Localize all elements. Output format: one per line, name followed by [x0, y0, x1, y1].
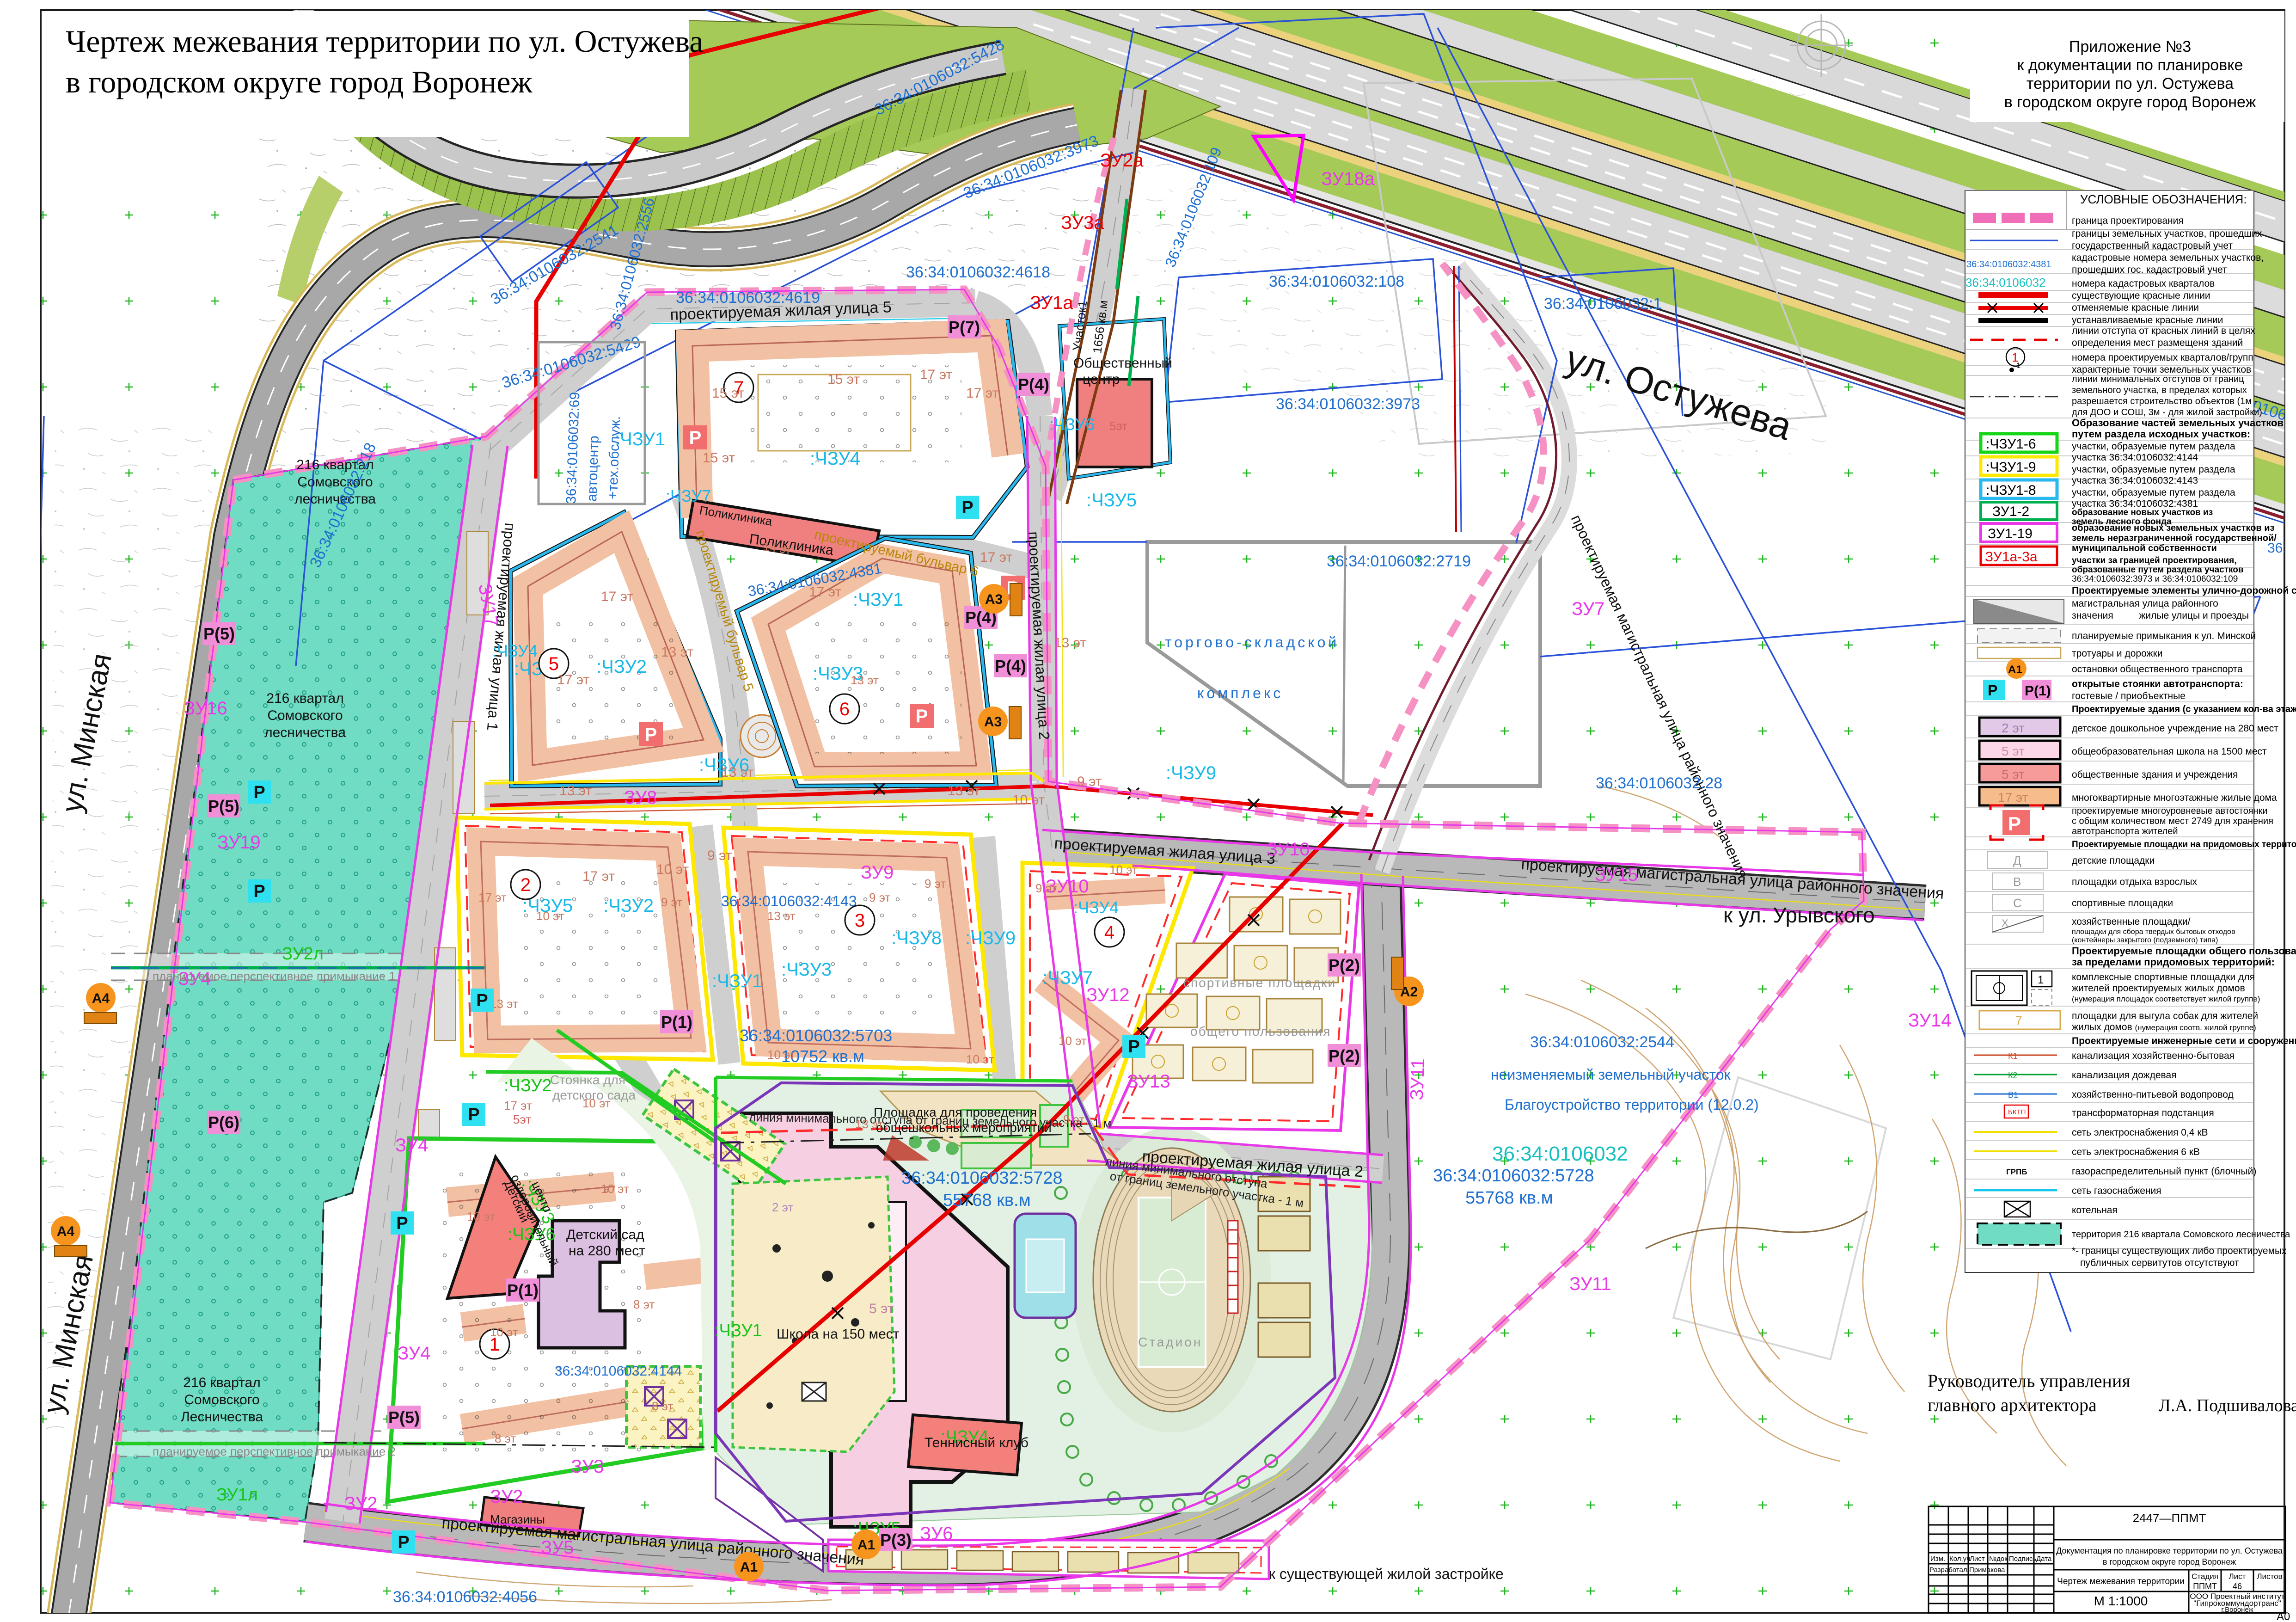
svg-text:9 эт: 9 эт: [707, 848, 732, 863]
svg-text:ЗУ1а-3а: ЗУ1а-3а: [1985, 549, 2038, 565]
svg-text:С: С: [2013, 896, 2022, 910]
svg-text:хозяйственно-питьевой водопров: хозяйственно-питьевой водопровод: [2072, 1089, 2234, 1100]
svg-text:жителей проектируемых жилых до: жителей проектируемых жилых домов: [2072, 983, 2245, 994]
svg-text:1: 1: [2016, 361, 2020, 370]
svg-text:1: 1: [2038, 974, 2044, 986]
svg-text:36:34:0106032: 36:34:0106032: [1492, 1143, 1628, 1165]
svg-text:трансформаторная подстанция: трансформаторная подстанция: [2072, 1108, 2214, 1118]
svg-text::ЧЗУ4: :ЧЗУ4: [810, 449, 860, 469]
svg-text:10 эт: 10 эт: [767, 1048, 796, 1062]
svg-text:ГРПБ: ГРПБ: [2006, 1167, 2027, 1176]
svg-text:жилых домов (нумерация соотв.: жилых домов (нумерация соотв. жилой груп…: [2072, 1022, 2256, 1032]
svg-text:земельного участка, в пределах: земельного участка, в пределах которых: [2072, 385, 2247, 395]
svg-text:детское дошкольное учреждение: детское дошкольное учреждение на 280 мес…: [2072, 723, 2278, 734]
svg-text:Р: Р: [2008, 813, 2021, 835]
svg-text::ЧЗУ7: :ЧЗУ7: [1042, 968, 1093, 988]
svg-text:отменяемые красные линии: отменяемые красные линии: [2072, 302, 2199, 313]
svg-text:36:34:0106032:4619: 36:34:0106032:4619: [676, 289, 820, 307]
svg-text:ППМТ: ППМТ: [2193, 1582, 2217, 1591]
svg-text:А4: А4: [92, 991, 110, 1006]
svg-text:ЗУ4: ЗУ4: [395, 1135, 428, 1155]
svg-text:Руководитель управления: Руководитель управления: [1928, 1370, 2131, 1391]
svg-text:участка 36:34:0106032:4144: участка 36:34:0106032:4144: [2072, 452, 2198, 463]
svg-text:территории по ул. Остужева: территории по ул. Остужева: [2027, 75, 2234, 92]
svg-text::ЧЗУ1-8: :ЧЗУ1-8: [1986, 483, 2036, 498]
svg-text:Р(7): Р(7): [949, 318, 980, 337]
svg-text:13 эт: 13 эт: [661, 645, 693, 660]
svg-text:Стоянка для: Стоянка для: [550, 1073, 625, 1087]
svg-text:котельная: котельная: [2072, 1205, 2118, 1216]
svg-text:ЗУ2: ЗУ2: [344, 1493, 377, 1514]
svg-text:10 эт: 10 эт: [1059, 1034, 1087, 1048]
svg-text:образование новых участков из: образование новых участков из: [2072, 508, 2213, 517]
svg-text:Р(1): Р(1): [507, 1281, 539, 1300]
svg-text:10 эт: 10 эт: [582, 1096, 611, 1110]
svg-text:Д: Д: [2013, 854, 2021, 867]
svg-text:Р: Р: [645, 725, 657, 745]
svg-text:площадки для выгула собак для: площадки для выгула собак для жителей: [2072, 1011, 2258, 1021]
svg-text:многоквартирные многоэтажные ж: многоквартирные многоэтажные жилые дома: [2072, 793, 2277, 803]
svg-text:17 эт: 17 эт: [557, 672, 589, 688]
svg-text:ЗУ2а: ЗУ2а: [1100, 150, 1144, 171]
svg-text:граница проектирования: граница проектирования: [2072, 215, 2184, 226]
svg-text:К2: К2: [2008, 1071, 2018, 1080]
svg-text:Р: Р: [1988, 682, 1997, 699]
svg-text::ЧЗУ5: :ЧЗУ5: [1086, 490, 1137, 510]
svg-text:Образование частей земельных у: Образование частей земельных участков: [2072, 417, 2284, 429]
svg-text:А1: А1: [857, 1537, 875, 1553]
svg-text:4: 4: [1104, 922, 1114, 943]
svg-text:Лист: Лист: [1970, 1555, 1985, 1563]
svg-text:36:34:0106032:3973: 36:34:0106032:3973: [1276, 395, 1420, 413]
svg-text:6: 6: [839, 699, 850, 719]
svg-text:Р(5): Р(5): [208, 797, 239, 816]
svg-text:ЗУ15: ЗУ15: [1595, 865, 1638, 885]
svg-text:55768 кв.м: 55768 кв.м: [943, 1191, 1031, 1210]
svg-text:13 эт: 13 эт: [1054, 635, 1086, 651]
svg-text:17 эт: 17 эт: [582, 869, 615, 884]
svg-text:Х: Х: [2002, 917, 2008, 929]
svg-text:УСЛОВНЫЕ ОБОЗНАЧЕНИЯ:: УСЛОВНЫЕ ОБОЗНАЧЕНИЯ:: [2080, 192, 2247, 206]
svg-text:спортивные площадки: спортивные площадки: [2072, 898, 2173, 909]
svg-text:БКТП: БКТП: [2008, 1108, 2026, 1116]
svg-text:5 эт: 5 эт: [869, 1301, 894, 1316]
svg-text:Проектируемые площадки общего: Проектируемые площадки общего пользовани…: [2072, 945, 2296, 957]
svg-text:сеть газоснабжения: сеть газоснабжения: [2072, 1186, 2161, 1196]
svg-text:ЗУ10: ЗУ10: [1267, 839, 1310, 860]
svg-text:участка 36:34:0106032:4143: участка 36:34:0106032:4143: [2072, 475, 2198, 486]
svg-text:№док: №док: [1989, 1555, 2008, 1563]
svg-text:номера проектируемых кварталов: номера проектируемых кварталов/групп: [2072, 352, 2253, 363]
svg-text:участки, образуемые путем разд: участки, образуемые путем раздела: [2072, 441, 2235, 452]
svg-text:17 эт: 17 эт: [504, 1099, 532, 1112]
svg-text:К1: К1: [2008, 1051, 2018, 1061]
svg-text:открытые стоянки автотранспорт: открытые стоянки автотранспорта:: [2072, 679, 2243, 689]
svg-text:Проектируемые инженерные сети: Проектируемые инженерные сети и сооружен…: [2072, 1036, 2296, 1046]
svg-text:Примакова: Примакова: [1969, 1566, 2005, 1574]
svg-text:линии отступа от красных линий: линии отступа от красных линий в целях: [2072, 326, 2255, 336]
svg-text:5эт: 5эт: [513, 1112, 531, 1126]
svg-text:Листов: Листов: [2257, 1572, 2282, 1581]
svg-text::ЧЗУ1: :ЧЗУ1: [712, 971, 762, 991]
svg-text:ЗУ3: ЗУ3: [571, 1456, 604, 1477]
svg-text:общего пользования: общего пользования: [1190, 1024, 1331, 1038]
svg-text:Детский сад: Детский сад: [566, 1227, 644, 1242]
svg-text:36:34:0106032: 36:34:0106032: [1965, 276, 2046, 289]
svg-text:Лесничества: Лесничества: [181, 1409, 263, 1425]
svg-text:9 эт: 9 эт: [869, 891, 890, 904]
svg-text:ЗУ1л: ЗУ1л: [216, 1485, 258, 1505]
svg-text:путем раздела исходных участко: путем раздела исходных участков:: [2072, 428, 2250, 440]
svg-text:13 эт: 13 эт: [559, 783, 592, 799]
svg-text:17 эт: 17 эт: [809, 584, 841, 600]
svg-text:значения: значения: [2072, 610, 2113, 621]
svg-text:Р(2): Р(2): [1329, 956, 1360, 975]
svg-text:46: 46: [2233, 1582, 2242, 1591]
svg-text:(контейнеры закрытого (подземн: (контейнеры закрытого (подземного) типа): [2072, 936, 2218, 944]
svg-text:с общим количеством мест 2749: с общим количеством мест 2749 для хранен…: [2072, 816, 2273, 826]
svg-text:гостевые / приобъектные: гостевые / приобъектные: [2072, 691, 2186, 701]
svg-text:9 эт: 9 эт: [1063, 1112, 1084, 1126]
svg-text:Р(4): Р(4): [1018, 375, 1049, 394]
svg-text:территория 216 квартала Сомовс: территория 216 квартала Сомовского лесни…: [2072, 1229, 2290, 1240]
svg-text:характерные точки земельных уч: характерные точки земельных участков: [2072, 364, 2251, 375]
svg-text:ЗУ8: ЗУ8: [624, 787, 657, 808]
svg-text:общеобразовательная школа на 1: общеобразовательная школа на 1500 мест: [2072, 746, 2267, 757]
svg-text:канализация хозяйственно-бытов: канализация хозяйственно-бытовая: [2072, 1051, 2235, 1061]
svg-text:ЗУ2л: ЗУ2л: [282, 944, 324, 964]
svg-text:к существующей жилой застройке: к существующей жилой застройке: [1269, 1566, 1504, 1582]
svg-text:ЗУ4: ЗУ4: [398, 1343, 430, 1364]
svg-text:газораспределительный пункт (б: газораспределительный пункт (блочный): [2072, 1166, 2256, 1177]
svg-text:проектируемые многоуровневые а: проектируемые многоуровневые автостоянки: [2072, 806, 2268, 816]
svg-text:участки, образуемые путем разд: участки, образуемые путем раздела: [2072, 487, 2235, 498]
svg-text:канализация дождевая: канализация дождевая: [2072, 1070, 2177, 1081]
svg-text::ЧЗУ7: :ЧЗУ7: [666, 486, 711, 505]
svg-text:36:34:0106032:2544: 36:34:0106032:2544: [1530, 1033, 1674, 1051]
svg-text:5: 5: [549, 654, 559, 674]
svg-text:ЗУ1-2: ЗУ1-2: [1992, 504, 2029, 519]
svg-text:8 эт: 8 эт: [652, 1399, 673, 1413]
svg-text:тротуары и дорожки: тротуары и дорожки: [2072, 648, 2163, 659]
svg-text::ЧЗУ2: :ЧЗУ2: [603, 896, 654, 916]
svg-text:10 эт: 10 эт: [601, 1182, 629, 1196]
svg-text::ЧЗУ1: :ЧЗУ1: [714, 1321, 762, 1340]
svg-text:Р: Р: [916, 706, 928, 726]
svg-text:10 эт: 10 эт: [490, 1325, 518, 1339]
svg-text:за пределами придомовых террит: за пределами придомовых территорий:: [2072, 956, 2275, 968]
svg-text:216 квартал: 216 квартал: [266, 691, 343, 706]
svg-text:границы земельных участков, пр: границы земельных участков, прошедших: [2072, 228, 2262, 239]
svg-text:ЗУ13: ЗУ13: [1127, 1071, 1170, 1092]
svg-text::ЧЗУ9: :ЧЗУ9: [1166, 763, 1216, 783]
svg-text:остановки общественного трансп: остановки общественного транспорта: [2072, 664, 2243, 675]
svg-text:к документации по планировке: к документации по планировке: [2017, 56, 2243, 74]
svg-text:9 эт: 9 эт: [925, 877, 946, 891]
svg-text:образование новых земельных уч: образование новых земельных участков из: [2072, 523, 2275, 533]
svg-text:сеть электроснабжения 0,4 кВ: сеть электроснабжения 0,4 кВ: [2072, 1127, 2208, 1138]
svg-text:10 эт: 10 эт: [966, 1052, 994, 1066]
svg-text:Дата: Дата: [2036, 1555, 2052, 1563]
svg-text:Р(5): Р(5): [388, 1408, 420, 1427]
svg-text:8 эт: 8 эт: [633, 1297, 655, 1311]
svg-text:ЗУ5: ЗУ5: [541, 1537, 574, 1558]
svg-text:36:34:0106032:28: 36:34:0106032:28: [1596, 774, 1722, 792]
svg-text:Р: Р: [476, 991, 488, 1010]
svg-text:Проектируемые элементы улично-: Проектируемые элементы улично-дорожной с…: [2072, 585, 2296, 596]
svg-text:Р: Р: [253, 882, 265, 901]
svg-text:планируемые примыкания к ул. М: планируемые примыкания к ул. Минской: [2072, 631, 2256, 641]
svg-text:15 эт: 15 эт: [712, 386, 744, 401]
svg-text::ЧЗУ9: :ЧЗУ9: [965, 928, 1016, 948]
svg-text:хозяйственные площадки/: хозяйственные площадки/: [2072, 916, 2191, 927]
svg-text::ЧЗУ1: :ЧЗУ1: [615, 429, 665, 449]
svg-text:Р(4): Р(4): [995, 657, 1026, 676]
svg-text:определения мест размещеня зда: определения мест размещеня зданий: [2072, 338, 2243, 348]
svg-text:центр: центр: [1083, 372, 1120, 387]
svg-text:8 эт: 8 эт: [495, 1432, 516, 1445]
svg-text:Р(5): Р(5): [203, 624, 235, 643]
svg-text:13 эт: 13 эт: [855, 1117, 883, 1131]
svg-text:Лист: Лист: [2229, 1572, 2246, 1581]
svg-text:15 эт: 15 эт: [703, 450, 735, 466]
svg-text:13 эт: 13 эт: [767, 909, 796, 923]
svg-text:216 квартал: 216 квартал: [183, 1375, 260, 1390]
svg-text:36:34:0106032:5703: 36:34:0106032:5703: [740, 1026, 892, 1045]
svg-text:площадки для сбора твердых быт: площадки для сбора твердых бытовых отход…: [2072, 928, 2235, 936]
svg-text::ЧЗУ1-6: :ЧЗУ1-6: [1986, 436, 2036, 452]
svg-text:комплекс: комплекс: [1197, 685, 1283, 701]
svg-text:13 эт: 13 эт: [721, 765, 753, 780]
svg-text:существующие красные линии: существующие красные линии: [2072, 290, 2210, 301]
svg-text:спортивные площадки: спортивные площадки: [1183, 976, 1336, 990]
svg-text:образованные путем раздела уча: образованные путем раздела участков: [2072, 565, 2244, 575]
svg-text:торгово-складской: торгово-складской: [1165, 634, 1339, 651]
svg-text:Общественный: Общественный: [1073, 356, 1172, 371]
svg-text:10 эт: 10 эт: [1012, 793, 1045, 808]
svg-text:участки за границей проектиров: участки за границей проектирования,: [2072, 556, 2236, 565]
svg-text:5 эт: 5 эт: [2002, 744, 2025, 758]
svg-text:государственный кадастровый уч: государственный кадастровый учет: [2072, 240, 2233, 251]
svg-text:в городском округе город Ворон: в городском округе город Воронеж: [66, 64, 533, 99]
svg-text::ЧЗУ2: :ЧЗУ2: [504, 1076, 552, 1095]
svg-text:общественные здания и учрежден: общественные здания и учреждения: [2072, 769, 2238, 780]
svg-text:Сомовского: Сомовского: [267, 708, 343, 723]
svg-text:А0: А0: [2277, 1610, 2290, 1622]
svg-text:36:34:0106032:1: 36:34:0106032:1: [1544, 295, 1662, 313]
svg-text:номера кадастровых кварталов: номера кадастровых кварталов: [2072, 278, 2215, 289]
svg-text:автоцентр: автоцентр: [584, 436, 602, 502]
svg-text:2447—ППМТ: 2447—ППМТ: [2133, 1511, 2206, 1525]
svg-text:2: 2: [520, 875, 531, 895]
svg-text:Теннисный клуб: Теннисный клуб: [925, 1435, 1029, 1450]
svg-text:сеть электроснабжения 6 кВ: сеть электроснабжения 6 кВ: [2072, 1147, 2200, 1157]
svg-text:9 эт: 9 эт: [661, 895, 682, 909]
svg-text:ЗУ3а: ЗУ3а: [1061, 213, 1104, 233]
svg-text:9 эт: 9 эт: [1035, 881, 1057, 895]
svg-text:55768 кв.м: 55768 кв.м: [1465, 1188, 1553, 1208]
svg-text::ЧЗУ8: :ЧЗУ8: [891, 928, 942, 948]
svg-text:планируемое перспективное прим: планируемое перспективное примыкание 2: [153, 1444, 396, 1458]
svg-text:жилые улицы и проезды: жилые улицы и проезды: [2139, 610, 2249, 621]
svg-text:Р: Р: [689, 428, 702, 448]
svg-text:ЗУ19: ЗУ19: [217, 832, 261, 853]
svg-text:*- границы существующих либо п: *- границы существующих либо проектируем…: [2072, 1246, 2287, 1256]
svg-text:А4: А4: [57, 1224, 75, 1239]
svg-text:36:34:0106032:108: 36:34:0106032:108: [1269, 273, 1404, 290]
svg-text:36:34:0106032:5728: 36:34:0106032:5728: [1433, 1166, 1594, 1186]
svg-text:комплексные спортивные площадк: комплексные спортивные площадки для: [2072, 972, 2255, 983]
svg-text:М 1:1000: М 1:1000: [2094, 1594, 2148, 1608]
svg-text:Изм.: Изм.: [1930, 1555, 1945, 1563]
svg-text:прошедших гос. кадастровый уче: прошедших гос. кадастровый учет: [2072, 264, 2227, 275]
svg-text:Р(2): Р(2): [1329, 1046, 1360, 1065]
svg-text:36:34:0106032:4618: 36:34:0106032:4618: [906, 264, 1050, 281]
svg-text:Р(1): Р(1): [661, 1013, 692, 1032]
svg-text:автотранспорта жителей: автотранспорта жителей: [2072, 826, 2178, 836]
svg-text:ЗУ7: ЗУ7: [1572, 599, 1604, 619]
svg-text::ЧЗУ3: :ЧЗУ3: [781, 959, 832, 980]
svg-text:Сомовского: Сомовского: [184, 1392, 259, 1407]
svg-text:земель неразграниченной госуда: земель неразграниченной государственной/: [2072, 533, 2277, 543]
svg-text:публичных сервитутов отсутству: публичных сервитутов отсутствуют: [2080, 1258, 2239, 1268]
svg-text:устанавливаемые красные линии: устанавливаемые красные линии: [2072, 315, 2223, 326]
svg-text:5 эт: 5 эт: [2002, 767, 2025, 781]
svg-text:ЗУ2: ЗУ2: [490, 1487, 523, 1507]
svg-text:лесничества: лесничества: [264, 725, 346, 740]
svg-text:детские площадки: детские площадки: [2072, 855, 2155, 866]
svg-text:13 эт: 13 эт: [851, 673, 879, 687]
svg-text:Р: Р: [396, 1214, 408, 1233]
svg-text:36:34:0106032:4144: 36:34:0106032:4144: [555, 1364, 682, 1379]
svg-text:ЗУ1-19: ЗУ1-19: [1988, 526, 2033, 541]
svg-text:10 эт: 10 эт: [1109, 863, 1138, 877]
svg-text:линии минимальных отступов от: линии минимальных отступов от границ: [2072, 374, 2244, 384]
svg-text:ЗУ18а: ЗУ18а: [1321, 169, 1375, 189]
svg-text::ЧЗУ6: :ЧЗУ6: [1049, 415, 1095, 434]
svg-text::ЧЗУ4: :ЧЗУ4: [1073, 898, 1119, 917]
svg-text:участки, образуемые путем разд: участки, образуемые путем раздела: [2072, 464, 2235, 475]
svg-text:неизменяемый земельный участок: неизменяемый земельный участок: [1491, 1066, 1731, 1083]
svg-text::ЧЗУ4: :ЧЗУ4: [492, 641, 538, 660]
svg-text:кадастровые номера земельных у: кадастровые номера земельных участков,: [2072, 252, 2264, 263]
svg-text:7: 7: [2015, 1014, 2022, 1027]
svg-text:2 эт: 2 эт: [2002, 721, 2025, 735]
svg-text:15 эт: 15 эт: [827, 372, 860, 387]
svg-text:Р: Р: [468, 1105, 479, 1124]
svg-text:Проектируемые площадки на прид: Проектируемые площадки на придомовых тер…: [2072, 840, 2296, 849]
svg-text:Р(1): Р(1): [2025, 683, 2051, 699]
svg-text:10 эт: 10 эт: [536, 909, 564, 923]
svg-text:разрешается строительство объе: разрешается строительство объектов (1м -: [2072, 396, 2257, 406]
svg-text:17 эт: 17 эт: [966, 386, 998, 401]
svg-text:магистральная улица районного: магистральная улица районного: [2072, 598, 2218, 609]
svg-text:(нумерация площадок соответств: (нумерация площадок соответствует жилой …: [2072, 995, 2260, 1003]
svg-text:площадки отдыха взрослых: площадки отдыха взрослых: [2072, 877, 2198, 887]
svg-text:муниципальной собственности: муниципальной собственности: [2072, 543, 2217, 553]
svg-text:17 эт: 17 эт: [980, 550, 1012, 565]
svg-text:ЗУ9: ЗУ9: [861, 862, 894, 883]
svg-text:Разработал: Разработал: [1929, 1566, 1967, 1574]
svg-text:ЗУ16: ЗУ16: [184, 698, 227, 719]
svg-text:А3: А3: [985, 592, 1003, 607]
svg-text:Документация по планировке тер: Документация по планировке территории по…: [2056, 1546, 2283, 1555]
svg-text:10 эт: 10 эт: [656, 862, 689, 877]
svg-text:Кол.уч: Кол.уч: [1949, 1555, 1970, 1563]
svg-text:Р: Р: [253, 783, 265, 802]
svg-text:10 эт: 10 эт: [467, 1210, 495, 1223]
svg-text:Чертеж межевания территории по: Чертеж межевания территории по ул. Остуж…: [66, 24, 703, 59]
svg-text:17 эт: 17 эт: [478, 891, 507, 904]
svg-text:+тех.обслуж.: +тех.обслуж.: [605, 416, 623, 499]
svg-text:36:34:0106032:4143: 36:34:0106032:4143: [721, 893, 857, 909]
svg-text:Проектируемые здания (с указан: Проектируемые здания (с указанием кол-ва…: [2072, 704, 2296, 714]
svg-text:13 эт: 13 эт: [948, 783, 980, 799]
svg-text:ЗУ11: ЗУ11: [1407, 1058, 1428, 1100]
svg-text:3: 3: [855, 910, 865, 931]
svg-text:Стадион: Стадион: [1138, 1335, 1202, 1349]
svg-text:Р(6): Р(6): [208, 1113, 239, 1132]
svg-text:Р: Р: [1128, 1037, 1139, 1057]
svg-text:ЗУ6: ЗУ6: [920, 1524, 953, 1544]
svg-text:17 эт: 17 эт: [601, 589, 633, 604]
svg-text:главного архитектора: главного архитектора: [1928, 1395, 2097, 1415]
svg-text:17 эт: 17 эт: [1998, 790, 2028, 805]
svg-text:планируемое перспективное прим: планируемое перспективное примыкание 1: [153, 969, 396, 983]
svg-text:36:34:0106032:4056: 36:34:0106032:4056: [393, 1588, 537, 1606]
svg-text:Р: Р: [398, 1533, 409, 1552]
svg-text:ЗУ14: ЗУ14: [1908, 1010, 1952, 1031]
svg-text:ЗУ11: ЗУ11: [1569, 1274, 1611, 1294]
svg-text::ЧЗУ2: :ЧЗУ2: [596, 657, 647, 677]
svg-text:к ул. Урывского: к ул. Урывского: [1723, 903, 1875, 927]
svg-text:36:34:0106032:5728: 36:34:0106032:5728: [901, 1168, 1063, 1188]
svg-text:Л.А. Подшивалова: Л.А. Подшивалова: [2159, 1396, 2296, 1415]
svg-text:г.Воронеж: г.Воронеж: [2221, 1606, 2253, 1614]
svg-text:2 эт: 2 эт: [772, 1200, 793, 1214]
svg-text:Подпись: Подпись: [2009, 1555, 2037, 1563]
svg-text:в городском округе город Ворон: в городском округе город Воронеж: [2004, 93, 2256, 111]
svg-text:в городском округе город Ворон: в городском округе город Воронеж: [2103, 1557, 2236, 1567]
svg-text:Благоустройство территории (12: Благоустройство территории (12.0.2): [1505, 1096, 1759, 1113]
svg-text:36:34:0106032:3973 и 36:34:010: 36:34:0106032:3973 и 36:34:0106032:109: [2072, 574, 2238, 584]
svg-text:Стадия: Стадия: [2192, 1572, 2218, 1581]
svg-text:Р(3): Р(3): [880, 1530, 912, 1549]
svg-text:17 эт: 17 эт: [920, 367, 952, 382]
svg-text:Чертеж межевания территории: Чертеж межевания территории: [2057, 1577, 2185, 1586]
svg-text:ЗУ1а: ЗУ1а: [1030, 293, 1073, 313]
svg-text:для ДОО и СОШ, 3м - для жилой: для ДОО и СОШ, 3м - для жилой застройки): [2072, 407, 2262, 418]
svg-text:В: В: [2013, 875, 2021, 889]
svg-text:Р: Р: [961, 498, 973, 517]
svg-text:Школа на 150 мест: Школа на 150 мест: [777, 1327, 900, 1342]
svg-text:Магазины: Магазины: [490, 1512, 545, 1526]
svg-text:13 эт: 13 эт: [490, 997, 518, 1011]
svg-text:А1: А1: [740, 1560, 758, 1575]
svg-text:на 280 мест: на 280 мест: [569, 1243, 645, 1259]
svg-text:36:34:0106032:4381: 36:34:0106032:4381: [1966, 259, 2051, 270]
svg-text:А1: А1: [2008, 664, 2022, 676]
svg-text:9 эт: 9 эт: [1077, 774, 1102, 789]
svg-text:В1: В1: [2008, 1090, 2018, 1100]
svg-text:А3: А3: [984, 714, 1002, 730]
svg-text::ЧЗУ1-9: :ЧЗУ1-9: [1986, 460, 2036, 475]
svg-text::ЧЗУ1: :ЧЗУ1: [853, 590, 903, 610]
svg-text:Приложение №3: Приложение №3: [2069, 38, 2191, 55]
svg-text:5эт: 5эт: [1109, 419, 1127, 433]
svg-text:36:34:0106032:2719: 36:34:0106032:2719: [1327, 553, 1471, 570]
